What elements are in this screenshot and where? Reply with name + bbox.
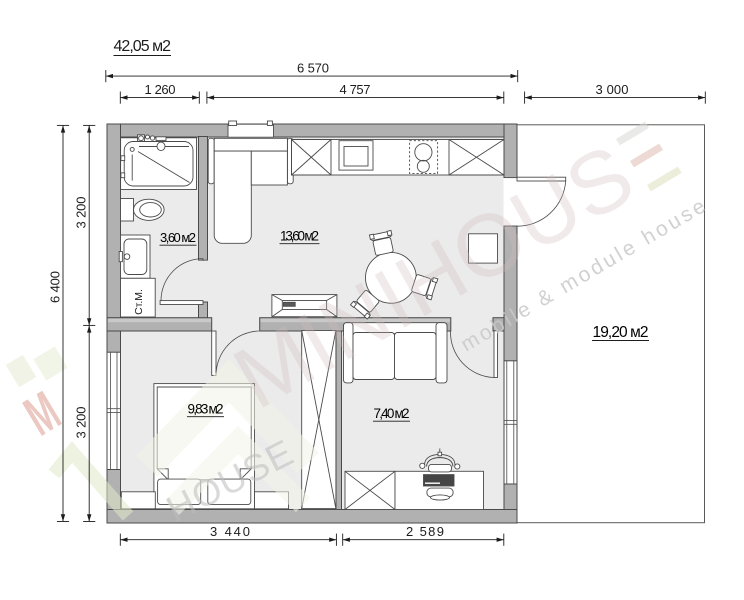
svg-text:6 400: 6 400 bbox=[48, 271, 63, 303]
svg-text:9,83 м2: 9,83 м2 bbox=[188, 402, 224, 417]
svg-text:42,05 м2: 42,05 м2 bbox=[114, 38, 172, 55]
svg-text:3 200: 3 200 bbox=[74, 197, 89, 229]
svg-text:3 000: 3 000 bbox=[596, 82, 629, 97]
svg-text:3 440: 3 440 bbox=[210, 524, 250, 539]
svg-text:19,20 м2: 19,20 м2 bbox=[593, 324, 649, 341]
svg-text:6 570: 6 570 bbox=[297, 61, 329, 76]
svg-text:13,60 м2: 13,60 м2 bbox=[280, 229, 319, 244]
svg-text:3 200: 3 200 bbox=[74, 407, 89, 439]
svg-text:7,40 м2: 7,40 м2 bbox=[374, 406, 410, 421]
svg-text:3,60 м2: 3,60 м2 bbox=[160, 230, 196, 245]
svg-text:1 260: 1 260 bbox=[145, 82, 176, 97]
svg-text:2 589: 2 589 bbox=[406, 524, 444, 539]
svg-text:Ст.М.: Ст.М. bbox=[133, 289, 145, 315]
svg-text:4 757: 4 757 bbox=[340, 82, 371, 97]
